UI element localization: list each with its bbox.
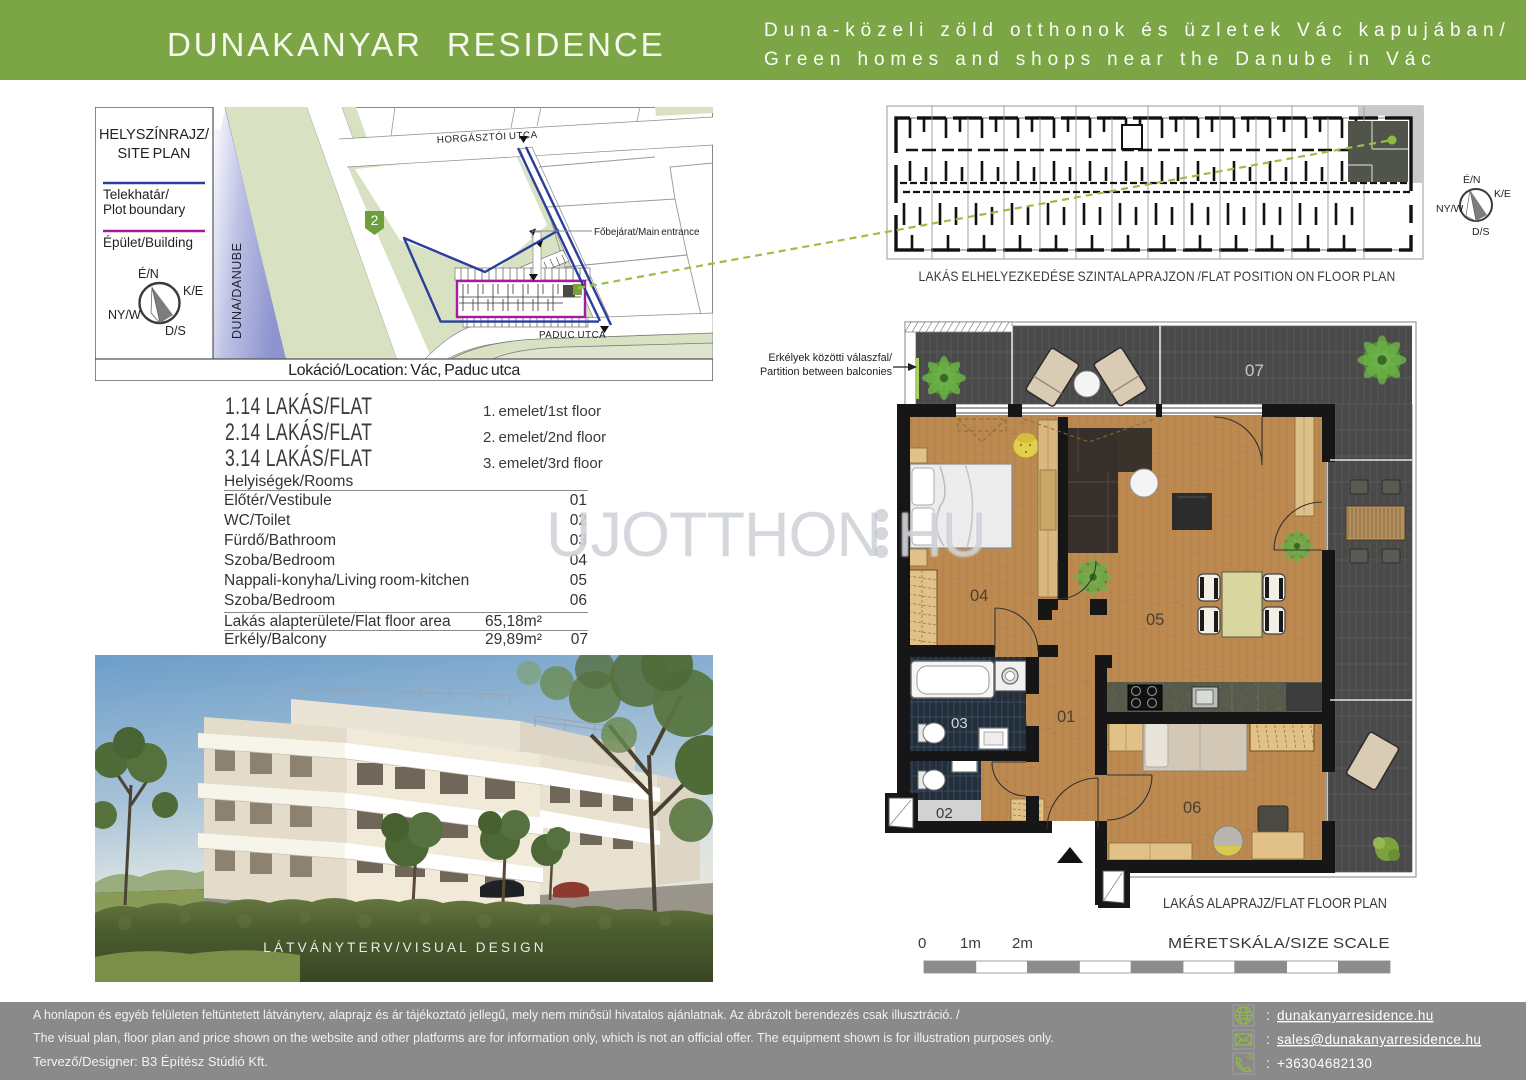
svg-text::: : [1266, 1008, 1270, 1023]
svg-text:Lokáció/Location: Vác, Paduc u: Lokáció/Location: Vác, Paduc utca [288, 362, 520, 379]
svg-text::: : [1266, 1056, 1270, 1071]
svg-text:É/N: É/N [138, 266, 159, 281]
svg-text:DUNA/DANUBE: DUNA/DANUBE [230, 243, 244, 340]
svg-text:Épület/Building: Épület/Building [103, 235, 193, 250]
svg-text:0: 0 [918, 935, 926, 952]
svg-text:LAKÁS ALAPRAJZ/FLAT FLOOR PLAN: LAKÁS ALAPRAJZ/FLAT FLOOR PLAN [1163, 895, 1387, 912]
svg-text:2: 2 [371, 212, 379, 228]
svg-text:K/E: K/E [1494, 188, 1511, 200]
svg-text:PADUC UTCA: PADUC UTCA [539, 330, 606, 341]
svg-text:NY/W: NY/W [108, 308, 141, 322]
svg-text:04: 04 [970, 587, 988, 605]
svg-text:É/N: É/N [1463, 173, 1481, 186]
svg-text:02: 02 [936, 805, 953, 822]
svg-text:K/E: K/E [183, 284, 203, 298]
svg-text:D/S: D/S [1472, 226, 1490, 238]
svg-text:dunakanyarresidence.hu: dunakanyarresidence.hu [1277, 1008, 1434, 1023]
svg-text:MÉRETSKÁLA/SIZE SCALE: MÉRETSKÁLA/SIZE SCALE [1168, 935, 1390, 952]
svg-text:Telekhatár/: Telekhatár/ [103, 187, 169, 202]
svg-text:LÁTVÁNYTERV/VISUAL DESIGN: LÁTVÁNYTERV/VISUAL DESIGN [263, 940, 547, 955]
svg-text:Plot boundary: Plot boundary [103, 202, 186, 217]
svg-text:06: 06 [1183, 799, 1201, 817]
svg-text:01: 01 [1057, 708, 1075, 726]
svg-text:LAKÁS ELHELYEZKEDÉSE SZINTALAP: LAKÁS ELHELYEZKEDÉSE SZINTALAPRAJZON /FL… [919, 269, 1396, 284]
svg-text:NY/W: NY/W [1436, 203, 1464, 215]
svg-text:HELYSZÍNRAJZ/: HELYSZÍNRAJZ/ [99, 126, 210, 143]
svg-text:D/S: D/S [165, 324, 186, 338]
svg-text:2m: 2m [1012, 935, 1033, 952]
svg-text:03: 03 [951, 715, 968, 732]
svg-text:1m: 1m [960, 935, 981, 952]
svg-text::: : [1266, 1032, 1270, 1047]
svg-text:07: 07 [1245, 361, 1264, 380]
svg-text:Főbejárat/Main entrance: Főbejárat/Main entrance [594, 227, 700, 238]
svg-text:sales@dunakanyarresidence.hu: sales@dunakanyarresidence.hu [1277, 1032, 1481, 1047]
svg-text:05: 05 [1146, 611, 1164, 629]
svg-text:SITE PLAN: SITE PLAN [117, 146, 190, 162]
svg-text:+36304682130: +36304682130 [1277, 1056, 1372, 1071]
